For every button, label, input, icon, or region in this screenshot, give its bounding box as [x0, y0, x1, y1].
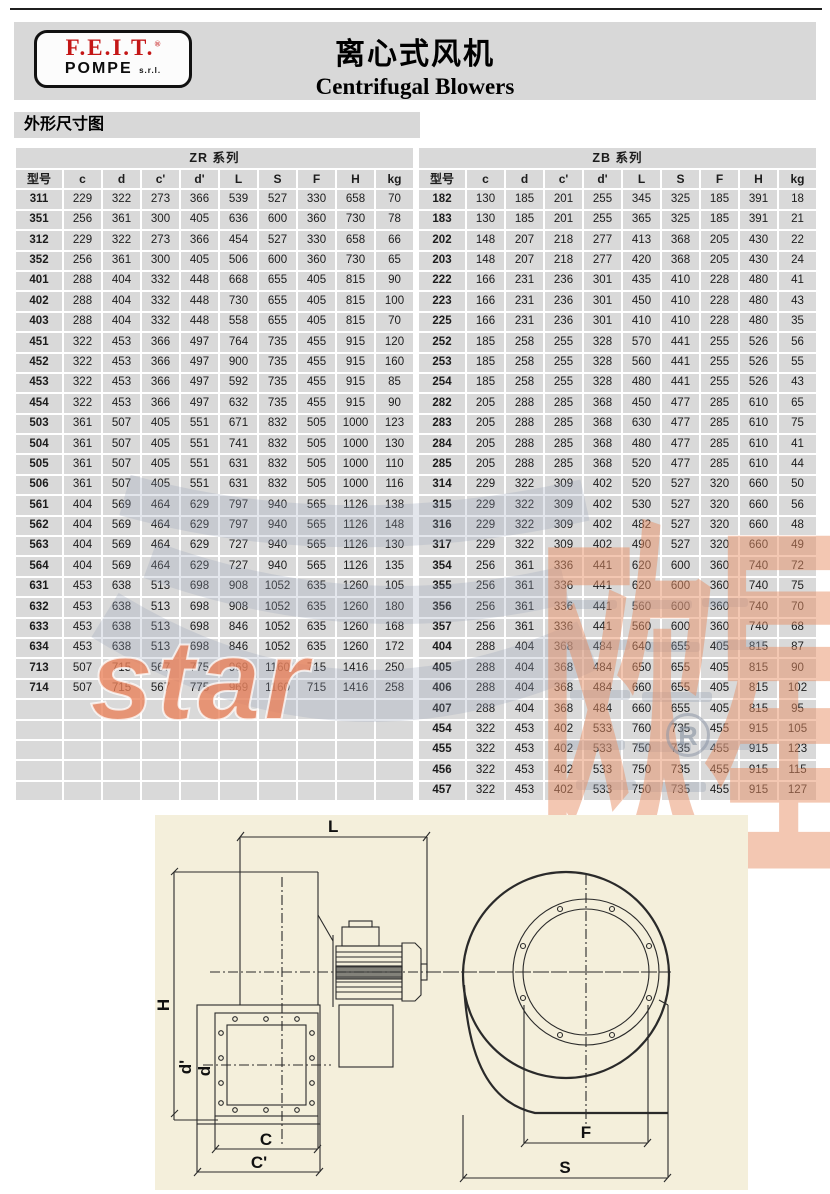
value-cell: 236	[545, 313, 582, 331]
value-cell: 455	[298, 374, 335, 392]
value-cell: 453	[64, 639, 101, 657]
value-cell: 650	[623, 659, 660, 677]
model-cell: 452	[16, 354, 62, 372]
value-cell: 72	[779, 557, 816, 575]
value-cell: 551	[181, 476, 218, 494]
value-cell: 332	[142, 272, 179, 290]
value-cell: 68	[779, 619, 816, 637]
value-cell: 236	[545, 272, 582, 290]
value-cell: 231	[506, 292, 543, 310]
value-cell: 969	[220, 680, 257, 698]
value-cell: 565	[298, 557, 335, 575]
value-cell: 1000	[337, 476, 374, 494]
value-cell: 229	[64, 231, 101, 249]
value-cell: 741	[220, 435, 257, 453]
value-cell: 185	[701, 211, 738, 229]
value-cell: 507	[103, 415, 140, 433]
value-cell: 464	[142, 517, 179, 535]
value-cell	[64, 700, 101, 718]
value-cell: 405	[298, 313, 335, 331]
value-cell: 185	[506, 211, 543, 229]
value-cell	[259, 782, 296, 800]
value-cell: 288	[467, 680, 504, 698]
dim-label-d-prime: d'	[176, 1060, 195, 1074]
value-cell: 322	[467, 741, 504, 759]
value-cell: 638	[103, 619, 140, 637]
value-cell: 520	[623, 455, 660, 473]
value-cell: 507	[64, 659, 101, 677]
column-header: c	[467, 170, 504, 188]
model-cell: 632	[16, 598, 62, 616]
value-cell: 635	[298, 639, 335, 657]
value-cell: 655	[662, 659, 699, 677]
table-row: 451322453366497764735455915120	[16, 333, 413, 351]
value-cell	[103, 741, 140, 759]
value-cell: 336	[545, 557, 582, 575]
value-cell: 507	[64, 680, 101, 698]
value-cell: 533	[584, 782, 621, 800]
value-cell: 330	[298, 190, 335, 208]
value-cell: 404	[506, 680, 543, 698]
value-cell: 368	[584, 455, 621, 473]
value-cell: 631	[220, 455, 257, 473]
value-cell: 361	[506, 619, 543, 637]
value-cell: 288	[64, 272, 101, 290]
value-cell	[337, 761, 374, 779]
value-cell: 301	[584, 313, 621, 331]
value-cell: 1126	[337, 496, 374, 514]
table-row: 40528840436848465065540581590	[419, 659, 816, 677]
value-cell: 404	[64, 537, 101, 555]
value-cell: 255	[545, 333, 582, 351]
value-cell: 404	[506, 639, 543, 657]
value-cell: 815	[337, 313, 374, 331]
value-cell: 505	[298, 476, 335, 494]
table-row: 31522932230940253052732066056	[419, 496, 816, 514]
value-cell: 775	[181, 659, 218, 677]
value-cell: 526	[740, 354, 777, 372]
value-cell: 130	[467, 190, 504, 208]
model-cell: 316	[419, 517, 465, 535]
value-cell: 285	[545, 415, 582, 433]
value-cell: 815	[740, 680, 777, 698]
value-cell: 288	[506, 415, 543, 433]
value-cell: 569	[103, 537, 140, 555]
value-cell: 558	[220, 313, 257, 331]
value-cell: 85	[376, 374, 413, 392]
model-cell: 317	[419, 537, 465, 555]
table-row: 20314820721827742036820543024	[419, 252, 816, 270]
value-cell: 477	[662, 394, 699, 412]
value-cell: 715	[298, 680, 335, 698]
value-cell: 336	[545, 619, 582, 637]
value-cell: 629	[181, 496, 218, 514]
value-cell: 288	[506, 435, 543, 453]
titles: 离心式风机 Centrifugal Blowers	[14, 22, 816, 100]
value-cell: 453	[506, 782, 543, 800]
value-cell: 630	[623, 415, 660, 433]
value-cell: 1126	[337, 517, 374, 535]
table-row: 5033615074055516718325051000123	[16, 415, 413, 433]
table-row: 40428840436848464065540581587	[419, 639, 816, 657]
value-cell: 505	[298, 435, 335, 453]
value-cell: 325	[662, 190, 699, 208]
value-cell: 70	[779, 598, 816, 616]
value-cell: 404	[64, 496, 101, 514]
value-cell: 453	[64, 578, 101, 596]
value-cell: 565	[298, 496, 335, 514]
model-cell: 504	[16, 435, 62, 453]
value-cell: 1052	[259, 598, 296, 616]
value-cell: 123	[779, 741, 816, 759]
value-cell: 600	[259, 252, 296, 270]
value-cell: 405	[142, 435, 179, 453]
value-cell: 365	[623, 211, 660, 229]
value-cell: 320	[701, 537, 738, 555]
value-cell: 366	[142, 374, 179, 392]
model-cell: 633	[16, 619, 62, 637]
value-cell: 629	[181, 537, 218, 555]
table-row: 5624045694646297979405651126148	[16, 517, 413, 535]
value-cell: 35	[779, 313, 816, 331]
value-cell: 610	[740, 415, 777, 433]
value-cell: 130	[376, 537, 413, 555]
value-cell: 497	[181, 354, 218, 372]
value-cell: 361	[103, 211, 140, 229]
value-cell: 256	[64, 252, 101, 270]
value-cell	[220, 700, 257, 718]
value-cell	[220, 782, 257, 800]
column-header: c'	[142, 170, 179, 188]
value-cell: 484	[584, 680, 621, 698]
value-cell: 229	[467, 517, 504, 535]
value-cell: 660	[740, 496, 777, 514]
zb-series-table: ZB 系列 型号cdc'd'LSFHkg 1821301852012553453…	[417, 146, 818, 802]
value-cell: 832	[259, 415, 296, 433]
value-cell: 1126	[337, 537, 374, 555]
model-cell	[16, 741, 62, 759]
value-cell: 832	[259, 455, 296, 473]
table-row: 40128840433244866865540581590	[16, 272, 413, 290]
value-cell: 405	[298, 272, 335, 290]
zb-series-title: ZB 系列	[419, 148, 816, 168]
value-cell: 832	[259, 435, 296, 453]
table-row: 35725636133644156060036074068	[419, 619, 816, 637]
table-row: 457322453402533750735455915127	[419, 782, 816, 800]
model-cell: 713	[16, 659, 62, 677]
table-row: 5634045694646297279405651126130	[16, 537, 413, 555]
column-header: F	[298, 170, 335, 188]
value-cell: 41	[779, 435, 816, 453]
value-cell: 815	[740, 700, 777, 718]
value-cell: 940	[259, 517, 296, 535]
column-header: kg	[779, 170, 816, 188]
column-header: L	[623, 170, 660, 188]
value-cell: 915	[740, 761, 777, 779]
value-cell: 915	[740, 782, 777, 800]
value-cell: 180	[376, 598, 413, 616]
value-cell: 229	[64, 190, 101, 208]
value-cell: 168	[376, 619, 413, 637]
value-cell: 332	[142, 313, 179, 331]
value-cell: 336	[545, 598, 582, 616]
value-cell: 413	[623, 231, 660, 249]
value-cell: 228	[701, 313, 738, 331]
value-cell: 527	[259, 190, 296, 208]
value-cell: 309	[545, 517, 582, 535]
value-cell: 368	[545, 700, 582, 718]
page-top-rule	[10, 8, 822, 10]
value-cell: 116	[376, 476, 413, 494]
value-cell: 258	[506, 374, 543, 392]
table-row: 35525636133644162060036074075	[419, 578, 816, 596]
value-cell: 55	[779, 354, 816, 372]
value-cell: 255	[701, 374, 738, 392]
value-cell: 127	[779, 782, 816, 800]
value-cell: 484	[584, 639, 621, 657]
value-cell: 658	[337, 190, 374, 208]
value-cell: 527	[259, 231, 296, 249]
value-cell: 50	[779, 476, 816, 494]
value-cell: 21	[779, 211, 816, 229]
value-cell: 832	[259, 476, 296, 494]
table-row: 455322453402533750735455915123	[419, 741, 816, 759]
value-cell: 336	[545, 578, 582, 596]
value-cell: 1416	[337, 680, 374, 698]
value-cell: 322	[467, 761, 504, 779]
value-cell: 148	[467, 252, 504, 270]
value-cell: 100	[376, 292, 413, 310]
value-cell: 815	[740, 639, 777, 657]
value-cell: 569	[103, 517, 140, 535]
value-cell: 441	[584, 578, 621, 596]
table-row: 5043615074055517418325051000130	[16, 435, 413, 453]
model-cell: 404	[419, 639, 465, 657]
value-cell: 600	[662, 557, 699, 575]
table-row: 20214820721827741336820543022	[419, 231, 816, 249]
table-row: 28520528828536852047728561044	[419, 455, 816, 473]
value-cell: 405	[181, 252, 218, 270]
table-row: 454322453402533760735455915105	[419, 721, 816, 739]
value-cell: 735	[259, 374, 296, 392]
value-cell: 228	[701, 272, 738, 290]
value-cell: 513	[142, 578, 179, 596]
value-cell: 95	[779, 700, 816, 718]
value-cell: 320	[701, 476, 738, 494]
value-cell: 404	[103, 313, 140, 331]
column-header: c'	[545, 170, 582, 188]
value-cell: 453	[103, 374, 140, 392]
value-cell	[181, 700, 218, 718]
value-cell: 405	[142, 455, 179, 473]
value-cell: 48	[779, 517, 816, 535]
model-cell: 451	[16, 333, 62, 351]
value-cell: 660	[623, 700, 660, 718]
value-cell: 698	[181, 578, 218, 596]
value-cell: 410	[623, 313, 660, 331]
value-cell: 285	[545, 435, 582, 453]
table-row: 35425636133644162060036074072	[419, 557, 816, 575]
value-cell: 513	[142, 598, 179, 616]
value-cell: 328	[584, 354, 621, 372]
model-cell: 506	[16, 476, 62, 494]
zr-series-table: ZR 系列 型号cdc'd'LSFHkg 3112293222733665395…	[14, 146, 415, 802]
model-cell	[16, 721, 62, 739]
value-cell: 551	[181, 435, 218, 453]
value-cell: 750	[623, 782, 660, 800]
value-cell: 322	[64, 394, 101, 412]
value-cell: 288	[467, 639, 504, 657]
value-cell	[337, 782, 374, 800]
column-header: H	[337, 170, 374, 188]
value-cell: 322	[64, 354, 101, 372]
value-cell: 328	[584, 333, 621, 351]
table-row: 5644045694646297279405651126135	[16, 557, 413, 575]
value-cell: 148	[376, 517, 413, 535]
value-cell	[103, 782, 140, 800]
value-cell: 285	[701, 394, 738, 412]
value-cell: 455	[298, 354, 335, 372]
value-cell: 760	[623, 721, 660, 739]
value-cell: 635	[298, 598, 335, 616]
value-cell: 1160	[259, 659, 296, 677]
value-cell: 410	[662, 272, 699, 290]
blower-drawing: L H d' d C C' F S	[155, 815, 748, 1190]
value-cell: 66	[376, 231, 413, 249]
zb-header-row: 型号cdc'd'LSFHkg	[419, 170, 816, 188]
model-cell: 562	[16, 517, 62, 535]
value-cell: 1052	[259, 619, 296, 637]
value-cell: 288	[506, 394, 543, 412]
value-cell: 185	[506, 190, 543, 208]
value-cell: 18	[779, 190, 816, 208]
value-cell: 655	[662, 639, 699, 657]
value-cell: 915	[337, 333, 374, 351]
value-cell: 530	[623, 496, 660, 514]
value-cell	[298, 741, 335, 759]
value-cell: 482	[623, 517, 660, 535]
value-cell: 655	[259, 313, 296, 331]
model-cell: 401	[16, 272, 62, 290]
table-row: 18213018520125534532518539118	[419, 190, 816, 208]
value-cell: 735	[662, 721, 699, 739]
value-cell	[376, 721, 413, 739]
value-cell	[64, 721, 101, 739]
value-cell: 1160	[259, 680, 296, 698]
value-cell: 258	[376, 680, 413, 698]
value-cell: 41	[779, 272, 816, 290]
model-cell: 456	[419, 761, 465, 779]
table-row: 25218525825532857044125552656	[419, 333, 816, 351]
value-cell: 455	[701, 782, 738, 800]
value-cell: 366	[142, 333, 179, 351]
value-cell: 915	[337, 394, 374, 412]
value-cell: 600	[662, 578, 699, 596]
value-cell: 255	[701, 354, 738, 372]
value-cell: 366	[181, 231, 218, 249]
value-cell: 402	[584, 496, 621, 514]
table-row: 40328840433244855865540581570	[16, 313, 413, 331]
value-cell: 24	[779, 252, 816, 270]
dim-label-F: F	[581, 1123, 591, 1142]
value-cell: 309	[545, 496, 582, 514]
value-cell: 75	[779, 415, 816, 433]
value-cell: 455	[298, 333, 335, 351]
table-row: 25318525825532856044125552655	[419, 354, 816, 372]
value-cell: 520	[623, 476, 660, 494]
value-cell: 285	[701, 435, 738, 453]
value-cell: 715	[103, 659, 140, 677]
value-cell: 455	[298, 394, 335, 412]
value-cell: 1000	[337, 455, 374, 473]
model-cell	[16, 700, 62, 718]
value-cell: 250	[376, 659, 413, 677]
value-cell: 600	[259, 211, 296, 229]
value-cell: 551	[181, 455, 218, 473]
model-cell: 351	[16, 211, 62, 229]
value-cell: 453	[64, 619, 101, 637]
value-cell: 735	[662, 761, 699, 779]
value-cell: 361	[64, 476, 101, 494]
value-cell: 368	[662, 231, 699, 249]
value-cell: 735	[259, 354, 296, 372]
value-cell: 320	[701, 496, 738, 514]
model-cell: 314	[419, 476, 465, 494]
table-row	[16, 700, 413, 718]
value-cell: 402	[545, 721, 582, 739]
value-cell: 600	[662, 598, 699, 616]
value-cell	[181, 782, 218, 800]
value-cell: 735	[259, 333, 296, 351]
model-cell: 457	[419, 782, 465, 800]
value-cell: 322	[103, 190, 140, 208]
value-cell: 110	[376, 455, 413, 473]
value-cell: 560	[623, 354, 660, 372]
value-cell: 477	[662, 415, 699, 433]
value-cell: 464	[142, 557, 179, 575]
dim-label-d: d	[195, 1066, 214, 1076]
column-header: 型号	[419, 170, 465, 188]
outline-dimension-diagram: L H d' d C C' F S	[155, 815, 748, 1190]
value-cell: 273	[142, 190, 179, 208]
model-cell: 352	[16, 252, 62, 270]
value-cell: 600	[662, 619, 699, 637]
value-cell: 405	[701, 639, 738, 657]
value-cell	[259, 741, 296, 759]
value-cell: 435	[623, 272, 660, 290]
value-cell: 285	[701, 415, 738, 433]
value-cell: 166	[467, 272, 504, 290]
value-cell: 632	[220, 394, 257, 412]
section-title-bar: 外形尺寸图	[14, 112, 420, 138]
value-cell: 322	[506, 476, 543, 494]
value-cell: 715	[103, 680, 140, 698]
model-cell: 222	[419, 272, 465, 290]
value-cell: 410	[662, 292, 699, 310]
value-cell: 56	[779, 333, 816, 351]
value-cell: 361	[506, 598, 543, 616]
value-cell: 477	[662, 435, 699, 453]
value-cell: 455	[701, 761, 738, 779]
value-cell: 727	[220, 537, 257, 555]
column-header: c	[64, 170, 101, 188]
value-cell: 185	[467, 333, 504, 351]
column-header: d'	[584, 170, 621, 188]
model-cell: 202	[419, 231, 465, 249]
value-cell: 255	[584, 190, 621, 208]
value-cell: 940	[259, 496, 296, 514]
value-cell: 533	[584, 741, 621, 759]
